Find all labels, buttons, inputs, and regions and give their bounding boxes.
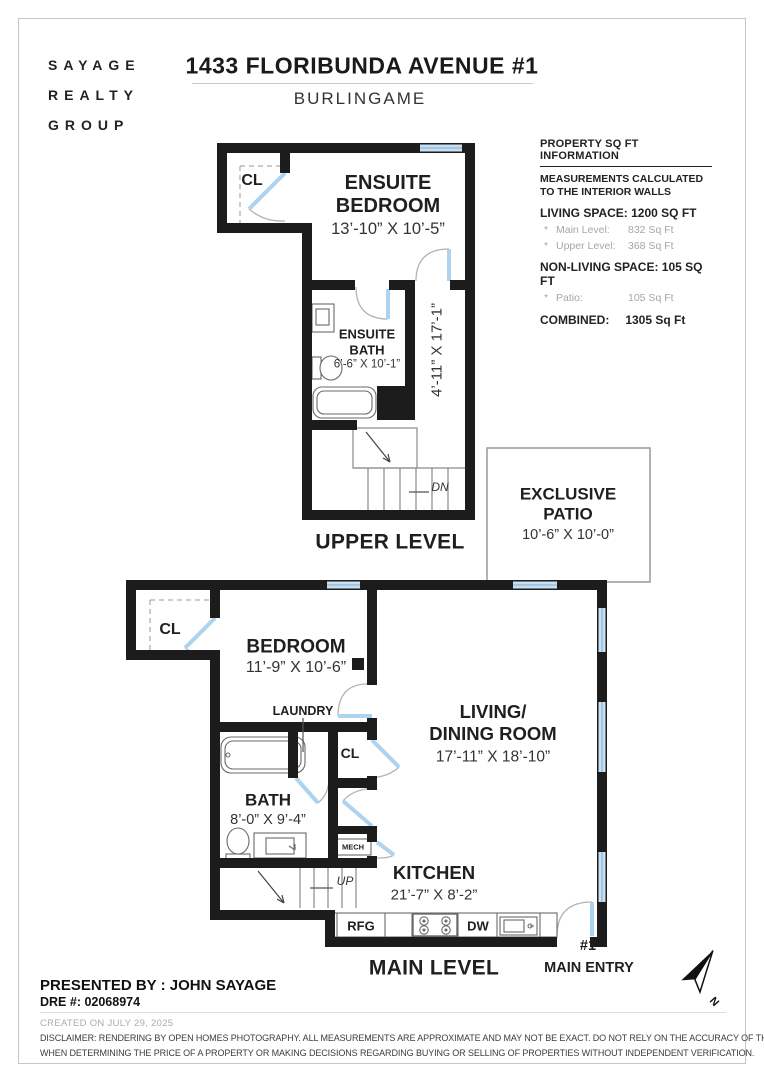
bedroom-label: BEDROOM	[246, 638, 345, 657]
main-closet-label: CL	[159, 622, 180, 638]
ensuite-bedroom-label: ENSUITE	[345, 173, 432, 193]
footer-divider	[40, 1012, 726, 1013]
ensuite-bath-dims: 6’-6” X 10’-1”	[334, 359, 400, 371]
ensuite-bath-label: ENSUITE	[339, 328, 395, 341]
laundry-label: LAUNDRY	[273, 705, 334, 718]
living-dining-dims: 17’-11” X 18’-10”	[436, 749, 550, 765]
mech-closet-label: MECH	[342, 843, 364, 851]
stairs-down-label: DN	[431, 481, 448, 493]
created-date: CREATED ON JULY 29, 2025	[40, 1018, 173, 1029]
refrigerator-label: RFG	[347, 920, 374, 933]
ensuite-bedroom-dims: 13’-10” X 10’-5”	[331, 221, 445, 238]
compass-icon	[681, 945, 722, 992]
bath-label: BATH	[245, 792, 291, 809]
upper-level-title: UPPER LEVEL	[315, 532, 464, 553]
main-entry-label: MAIN ENTRY	[544, 961, 634, 976]
living-closet-label: CL	[341, 746, 360, 760]
presented-by: PRESENTED BY : JOHN SAYAGE	[40, 977, 276, 994]
ensuite-bedroom-label: BEDROOM	[336, 196, 440, 216]
patio-dims: 10’-6” X 10’-0”	[522, 528, 614, 543]
bedroom-dims: 11’-9” X 10’-6”	[246, 660, 346, 676]
stairs-up-label: UP	[337, 875, 354, 887]
disclaimer-line: WHEN DETERMINING THE PRICE OF A PROPERTY…	[40, 1048, 754, 1058]
dre-number: DRE #: 02068974	[40, 995, 140, 1009]
upper-stairs	[353, 428, 465, 510]
patio-label: EXCLUSIVE	[520, 486, 616, 503]
dishwasher-label: DW	[467, 920, 489, 933]
living-dining-label: LIVING/	[460, 703, 527, 722]
kitchen-sink	[500, 917, 537, 935]
upper-closet-label: CL	[241, 173, 262, 189]
main-level-title: MAIN LEVEL	[369, 958, 499, 979]
living-dining-label: DINING ROOM	[429, 725, 556, 744]
bath-dims: 8’-0” X 9’-4”	[230, 813, 306, 828]
kitchen-dims: 21’-7” X 8’-2”	[391, 888, 478, 903]
hallway-dims: 4’-11” X 17’-1”	[430, 303, 445, 397]
unit-number-label: #1	[580, 939, 596, 954]
upper-windows	[420, 145, 462, 152]
disclaimer-line: DISCLAIMER: RENDERING BY OPEN HOMES PHOT…	[40, 1033, 764, 1043]
patio-label: PATIO	[543, 506, 592, 523]
floor-plan-sheet: { "header": { "logo_lines": ["SAYAGE", "…	[0, 0, 764, 1080]
kitchen-label: KITCHEN	[393, 864, 475, 883]
ensuite-bath-label: BATH	[349, 344, 384, 357]
